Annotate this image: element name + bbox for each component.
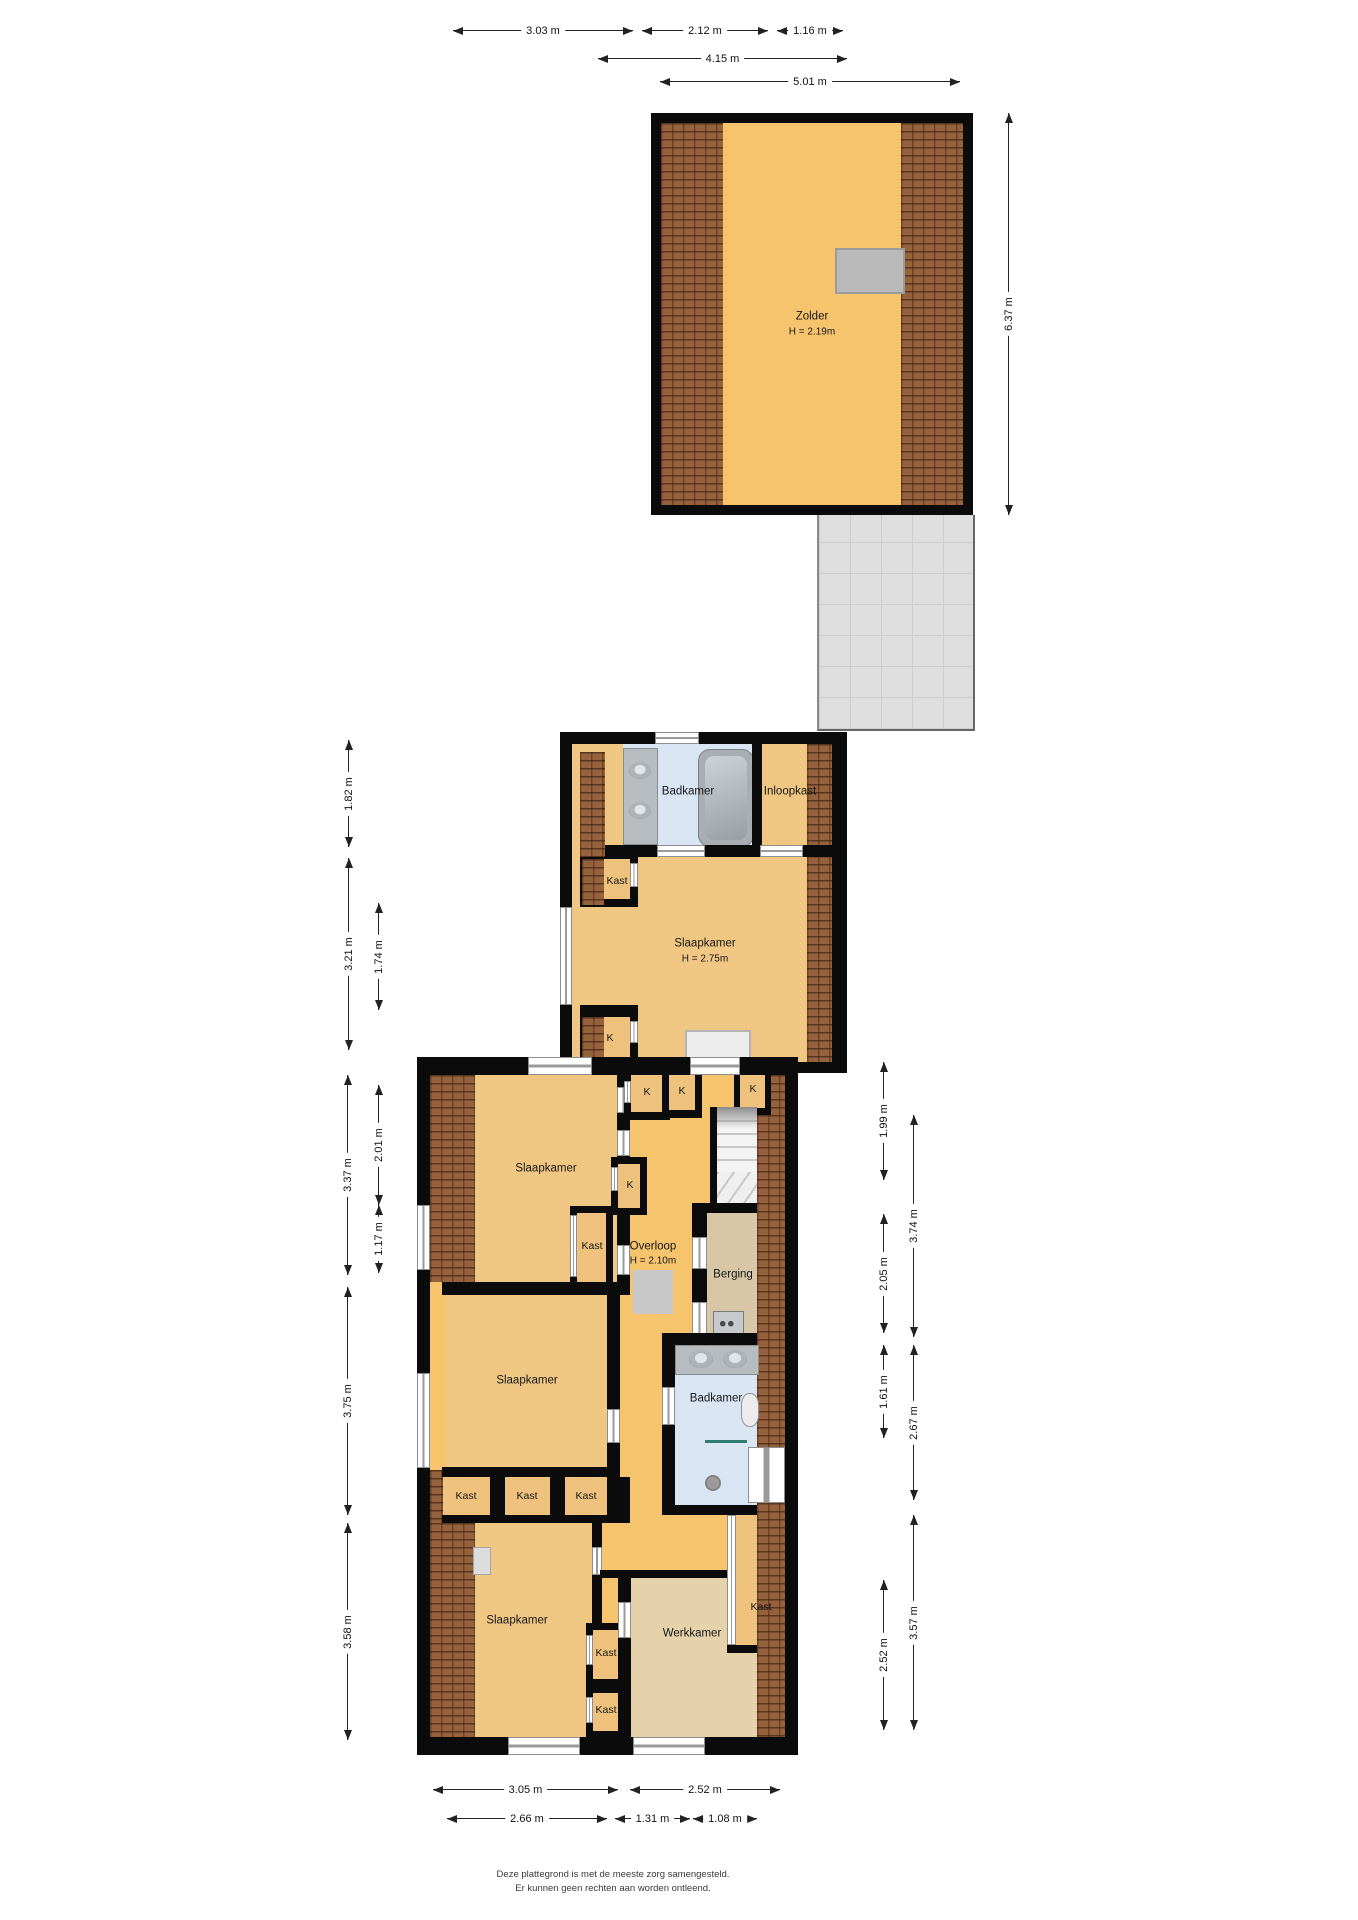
room-label-kast-m2: Kast [595,1705,616,1717]
roof-strip [582,859,604,905]
room-label-slaapkamer-bl: Slaapkamer [486,1615,547,1628]
door [607,1409,620,1443]
dim-bottom-5: 1.08 m [693,1818,757,1819]
room-label-werkkamer: Werkkamer [663,1628,722,1641]
dim-f1-left-5: 3.58 m [347,1523,348,1740]
room-label-kast-hall: Kast [581,1241,602,1253]
dim-label: 3.58 m [342,1610,354,1654]
room-label-k-b: K [678,1086,685,1098]
room-label-kast-r: Kast [750,1602,771,1614]
wall [600,1570,730,1578]
floor1-roof-left-3 [430,1523,475,1737]
dim-f1-left-3: 1.17 m [378,1205,379,1273]
dim-top-2: 2.12 m [642,30,768,31]
zolder-roof-left [661,123,723,505]
dim-label: 1.82 m [343,772,355,816]
room-height-slaapkamer-f2: H = 2.75m [682,954,728,965]
door [586,1697,593,1723]
dim-f1-right-1: 1.99 m [883,1062,884,1180]
dim-label: 2.12 m [683,25,727,37]
dim-f1-right-2: 3.74 m [913,1115,914,1337]
dim-label: 1.99 m [878,1099,890,1143]
dim-label: 1.31 m [631,1813,675,1825]
dim-bottom-4: 1.31 m [615,1818,690,1819]
room-label-berging: Berging [713,1269,753,1282]
dim-f1-left-1: 3.37 m [347,1075,348,1275]
dim-bottom-1: 3.05 m [433,1789,618,1790]
room-height-overloop: H = 2.10m [630,1256,676,1267]
radiator [473,1547,491,1575]
dim-label: 1.08 m [703,1813,747,1825]
dim-top-5: 5.01 m [660,81,960,82]
room-label-overloop: Overloop [630,1241,677,1254]
sink [629,762,651,779]
dim-f1-right-7: 3.57 m [913,1515,914,1730]
dim-f2-left-3: 1.74 m [378,903,379,1010]
dim-label: 1.16 m [788,25,832,37]
wall [710,1107,717,1205]
floor1-roof-right-1 [757,1075,785,1447]
room-label-k-mid: K [626,1180,633,1192]
dim-top-1: 3.03 m [453,30,633,31]
door-kast-f2 [630,863,638,887]
dim-label: 2.66 m [505,1813,549,1825]
zolder-outline: Zolder H = 2.19m [651,113,973,515]
dim-f1-right-4: 1.61 m [883,1345,884,1438]
dim-label: 1.61 m [878,1370,890,1414]
dim-label: 3.03 m [521,25,565,37]
floor1-roof-left-1 [430,1075,475,1282]
door-k-f2 [630,1021,638,1043]
disclaimer-line2: Er kunnen geen rechten aan worden ontlee… [313,1882,913,1896]
room-label-k-a: K [643,1087,650,1099]
shower-drain [705,1475,721,1491]
dim-f1-right-5: 2.67 m [913,1345,914,1500]
room-label-kast-3: Kast [575,1491,596,1503]
sliding-door [570,1215,577,1277]
window [655,732,699,744]
floor2-outline: Badkamer Inloopkast Kast Slaapkamer H = … [560,732,847,1073]
roof-terrace [817,515,975,731]
wall [442,1515,620,1523]
sliding-door [727,1515,736,1645]
dim-label: 2.52 m [683,1784,727,1796]
room-label-slaapkamer-f2: Slaapkamer [674,938,735,951]
room-label-k-f2: K [606,1033,613,1045]
door [611,1167,618,1191]
wall [752,744,762,845]
dim-label: 1.17 m [373,1217,385,1261]
floor-mat [633,1270,673,1314]
door [624,1081,631,1103]
dim-top-3: 1.16 m [777,30,843,31]
skylight [835,248,905,294]
dim-label: 3.75 m [342,1379,354,1423]
dim-f2-left-1: 1.82 m [348,740,349,847]
dim-zolder-right: 6.37 m [1008,113,1009,515]
window [508,1737,580,1755]
door-inloopkast [760,845,803,857]
dim-label: 3.57 m [908,1601,920,1645]
door [692,1302,707,1334]
staircase-shade [717,1107,757,1129]
dim-bottom-3: 2.66 m [447,1818,607,1819]
dim-f1-right-6: 2.52 m [883,1580,884,1730]
room-label-kast-1: Kast [455,1491,476,1503]
dim-label: 3.21 m [343,932,355,976]
window [417,1373,430,1468]
window [560,907,572,1005]
room-height-zolder: H = 2.19m [789,327,835,338]
dim-label: 3.37 m [342,1153,354,1197]
door [618,1602,631,1638]
wall [727,1645,757,1653]
dim-f1-left-2: 2.01 m [378,1085,379,1205]
window [690,1057,740,1075]
dim-label: 2.01 m [373,1123,385,1167]
door [692,1237,707,1269]
dim-label: 1.74 m [373,935,385,979]
wall [442,1467,620,1477]
room-label-kast-f2: Kast [606,876,627,888]
floor1-outline: Slaapkamer K K K K Kast Overloo [417,1057,798,1755]
room-label-kast-m1: Kast [595,1648,616,1660]
door [617,1245,630,1275]
window [417,1205,430,1270]
dim-top-4: 4.15 m [598,58,847,59]
wall [675,1333,757,1345]
floorplan-canvas: 3.03 m 2.12 m 1.16 m 4.15 m 5.01 m Zolde… [0,0,1358,1920]
dim-label: 2.05 m [878,1252,890,1296]
shower-screen [705,1440,747,1443]
door-badkamer-f2 [657,845,705,857]
room-label-badkamer-f2: Badkamer [662,786,714,799]
dim-label: 5.01 m [788,76,832,88]
sink [689,1350,713,1368]
dim-f2-left-2: 3.21 m [348,858,349,1050]
toilet [741,1393,759,1427]
roof-strip [582,1017,604,1060]
disclaimer: Deze plattegrond is met de meeste zorg s… [313,1868,913,1896]
zolder-roof-right [901,123,963,505]
door [662,1387,675,1425]
dim-f1-left-4: 3.75 m [347,1287,348,1515]
room-label-kast-2: Kast [516,1491,537,1503]
room-label-slaapkamer-ml: Slaapkamer [496,1375,557,1388]
dim-label: 2.52 m [878,1633,890,1677]
dim-bottom-2: 2.52 m [630,1789,780,1790]
dim-label: 2.67 m [908,1401,920,1445]
door [617,1130,630,1156]
room-label-slaapkamer-tl: Slaapkamer [515,1163,576,1176]
room-label-badkamer-f1: Badkamer [690,1393,742,1406]
floor1-roof-right-2 [757,1503,785,1737]
room-slaapkamer-bl [475,1523,592,1737]
staircase-turn [717,1172,757,1205]
wall [662,1505,757,1515]
room-kast-r [736,1515,757,1645]
dim-label: 3.74 m [908,1204,920,1248]
sink [723,1350,747,1368]
dim-f1-right-3: 2.05 m [883,1214,884,1333]
disclaimer-line1: Deze plattegrond is met de meeste zorg s… [313,1868,913,1882]
window [528,1057,592,1075]
sink [629,802,651,819]
door [586,1635,593,1665]
dim-label: 4.15 m [701,53,745,65]
window [748,1447,785,1503]
dim-label: 6.37 m [1003,292,1015,336]
room-label-zolder: Zolder [796,311,829,324]
window [633,1737,705,1755]
room-label-inloopkast: Inloopkast [764,786,816,799]
dim-label: 3.05 m [504,1784,548,1796]
room-label-k-c: K [749,1084,756,1096]
